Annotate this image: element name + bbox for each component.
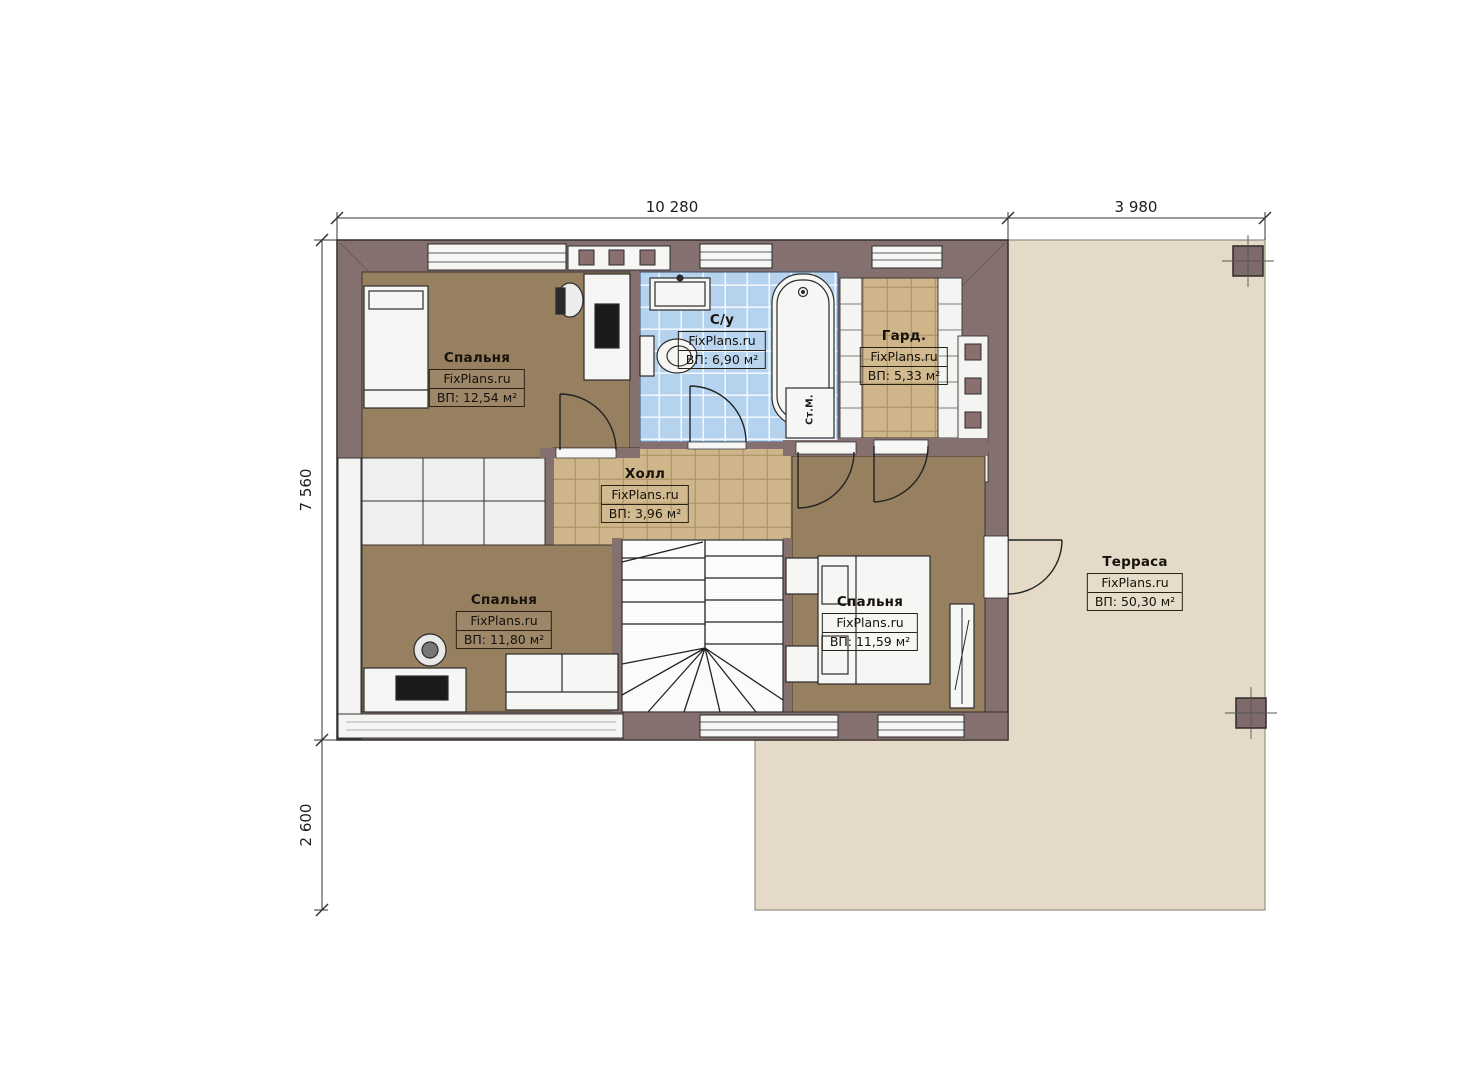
room-name: Холл: [601, 466, 689, 482]
room-area: ВП: 11,59 м²: [823, 632, 917, 651]
room-area: ВП: 3,96 м²: [602, 504, 688, 523]
window-bottom-middle: [700, 715, 838, 737]
watermark: FixPlans.ru: [457, 612, 551, 630]
balcony-band-bottom: [338, 714, 624, 738]
door-gap-bathroom: [688, 442, 746, 449]
watermark: FixPlans.ru: [823, 614, 917, 632]
stairs-floor: [622, 540, 783, 712]
door-gap-bedroom-br: [796, 442, 856, 454]
room-area: ВП: 50,30 м²: [1088, 592, 1182, 611]
window-top-middle: [700, 244, 772, 268]
room-info-box: FixPlans.ru ВП: 50,30 м²: [1087, 573, 1183, 611]
room-info-box: FixPlans.ru ВП: 6,90 м²: [678, 331, 766, 369]
room-label-hall: Холл FixPlans.ru ВП: 3,96 м²: [601, 466, 689, 523]
watermark: FixPlans.ru: [602, 486, 688, 504]
watermark: FixPlans.ru: [861, 348, 947, 366]
wall-bedroom-bath: [630, 272, 640, 458]
wall-panel-squares: [568, 246, 670, 270]
watermark: FixPlans.ru: [679, 332, 765, 350]
room-info-box: FixPlans.ru ВП: 11,80 м²: [456, 611, 552, 649]
dimension-left-main: 7 560: [297, 469, 315, 512]
dimension-top-total: 10 280: [646, 198, 699, 216]
room-label-bedroom-top-left: Спальня FixPlans.ru ВП: 12,54 м²: [429, 350, 525, 407]
door-gap-terrace: [984, 536, 1008, 598]
room-label-bedroom-bottom-right: Спальня FixPlans.ru ВП: 11,59 м²: [822, 594, 918, 651]
room-info-box: FixPlans.ru ВП: 12,54 м²: [429, 369, 525, 407]
room-name: Гард.: [860, 328, 948, 344]
room-label-bedroom-bottom-left: Спальня FixPlans.ru ВП: 11,80 м²: [456, 592, 552, 649]
room-area: ВП: 12,54 м²: [430, 388, 524, 407]
door-gap-wardrobe: [874, 440, 928, 454]
dimension-left-lower: 2 600: [297, 804, 315, 847]
closet-cells: [362, 458, 545, 545]
window-top-right: [872, 246, 942, 268]
wardrobe-shelf-left: [840, 278, 862, 438]
wall-hall-closet: [545, 448, 553, 545]
sofa-bottom-left: [506, 654, 618, 710]
watermark: FixPlans.ru: [1088, 574, 1182, 592]
watermark: FixPlans.ru: [430, 370, 524, 388]
balcony-band-left: [338, 458, 361, 739]
window-bottom-right: [878, 715, 964, 737]
room-area: ВП: 11,80 м²: [457, 630, 551, 649]
room-label-wardrobe: Гард. FixPlans.ru ВП: 5,33 м²: [860, 328, 948, 385]
door-gap-bedroom-tl: [556, 448, 616, 458]
room-name: Спальня: [456, 592, 552, 608]
floor-plan-drawing: [0, 0, 1473, 1080]
sink: [650, 275, 710, 310]
washing-machine-label: Ст.М.: [805, 386, 816, 434]
window-top-left: [428, 244, 566, 270]
room-area: ВП: 5,33 м²: [861, 366, 947, 385]
room-name: Спальня: [429, 350, 525, 366]
room-info-box: FixPlans.ru ВП: 11,59 м²: [822, 613, 918, 651]
bottom-wall: [623, 712, 1008, 740]
room-label-bathroom: С/у FixPlans.ru ВП: 6,90 м²: [678, 312, 766, 369]
room-info-box: FixPlans.ru ВП: 5,33 м²: [860, 347, 948, 385]
room-info-box: FixPlans.ru ВП: 3,96 м²: [601, 485, 689, 523]
room-label-terrace: Терраса FixPlans.ru ВП: 50,30 м²: [1087, 554, 1183, 611]
floor-plan-page: { "dimensions": { "top_total": "10 280",…: [0, 0, 1473, 1080]
room-name: Спальня: [822, 594, 918, 610]
room-name: С/у: [678, 312, 766, 328]
bed-top-left: [364, 286, 428, 408]
room-name: Терраса: [1087, 554, 1183, 570]
dimension-top-terrace: 3 980: [1115, 198, 1158, 216]
radiator: [950, 604, 974, 708]
room-area: ВП: 6,90 м²: [679, 350, 765, 369]
